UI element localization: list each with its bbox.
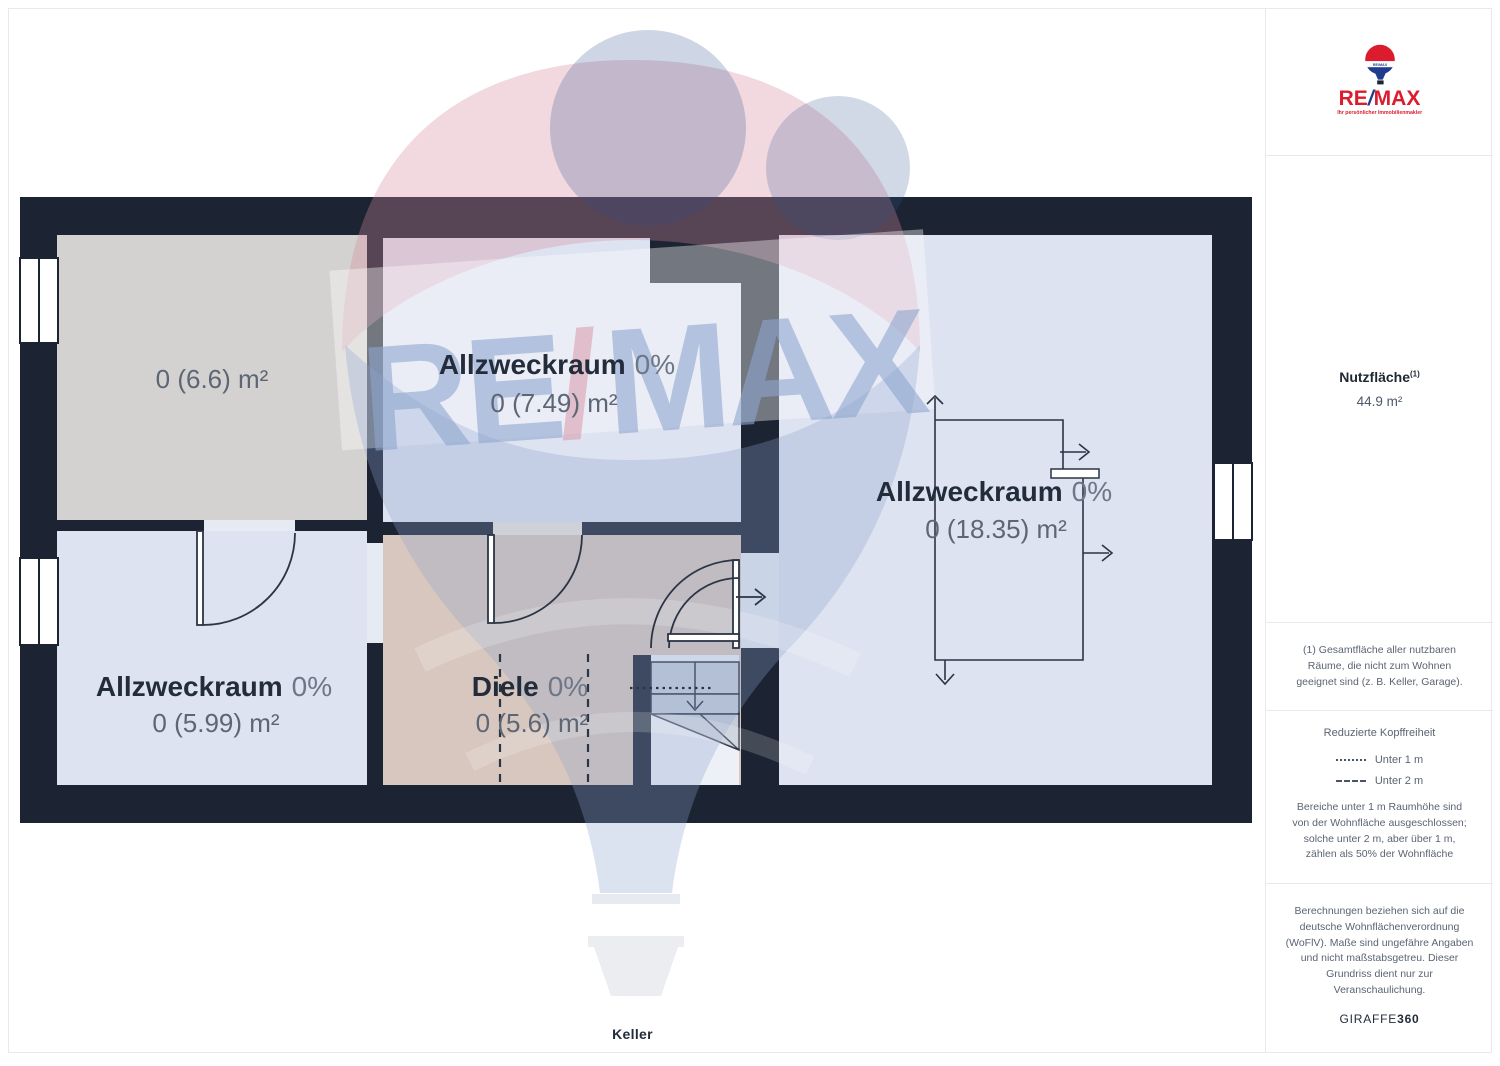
legend-item-label: Unter 2 m	[1375, 775, 1423, 787]
dotted-line-swatch	[1336, 759, 1366, 761]
area-summary-footnote-ref: (1)	[1410, 369, 1420, 378]
room-utility-right-area: 0 (18.35) m²	[925, 514, 1067, 544]
legend-item-under-2m: Unter 2 m	[1336, 775, 1423, 787]
area-summary-title-text: Nutzfläche	[1339, 369, 1410, 385]
floor-plan: RE / MAX	[0, 0, 1265, 1061]
passage-opening-left	[367, 543, 383, 643]
room-utility-top-area: 0 (7.49) m²	[490, 388, 617, 418]
watermark-gore-2	[766, 96, 910, 240]
remax-wordmark: RE/MAX	[1339, 88, 1421, 109]
room-utility-right-label: Allzweckraum0%	[876, 476, 1112, 507]
dashed-line-swatch	[1336, 780, 1366, 782]
legend-item-under-1m: Unter 1 m	[1336, 754, 1423, 766]
watermark-gore-1	[550, 30, 746, 226]
room-utility-bottom-left-area: 0 (5.99) m²	[152, 708, 279, 738]
remax-logo: RE/MAX RE/MAX Ihr persönlicher Immobilie…	[1266, 8, 1493, 155]
giraffe360-normal: GIRAFFE	[1339, 1012, 1397, 1026]
disclaimer-section: Berechnungen beziehen sich auf die deuts…	[1266, 883, 1493, 1053]
door-leaf-storage	[197, 531, 203, 625]
room-storage-area: 0 (6.6) m²	[156, 364, 269, 394]
giraffe360-brand: GIRAFFE360	[1339, 1012, 1419, 1026]
area-summary-title: Nutzfläche(1)	[1339, 369, 1420, 385]
legend-title: Reduzierte Kopffreiheit	[1324, 727, 1436, 739]
brand-max: MAX	[1374, 87, 1421, 110]
legend-item-label: Unter 1 m	[1375, 754, 1423, 766]
floor-plan-svg: RE / MAX	[0, 0, 1265, 1061]
watermark-basket	[588, 894, 684, 996]
remax-balloon-icon: RE/MAX	[1364, 43, 1396, 85]
remax-watermark: RE / MAX	[329, 30, 935, 996]
info-sidebar: RE/MAX RE/MAX Ihr persönlicher Immobilie…	[1265, 8, 1493, 1053]
giraffe360-bold: 360	[1397, 1012, 1419, 1026]
disclaimer-text: Berechnungen beziehen sich auf die deuts…	[1286, 904, 1474, 999]
brand-re: RE	[1339, 87, 1368, 110]
remax-tagline: Ihr persönlicher Immobilienmakler	[1337, 110, 1422, 116]
room-utility-bottom-left-floor	[57, 531, 367, 785]
room-hallway-label: Diele0%	[472, 671, 588, 702]
room-hallway-area: 0 (5.6) m²	[476, 708, 589, 738]
headroom-legend: Reduzierte Kopffreiheit Unter 1 m Unter …	[1266, 710, 1493, 883]
room-utility-top-label: Allzweckraum0%	[439, 349, 675, 380]
balloon-band-text: RE/MAX	[1372, 63, 1387, 67]
floor-name-label: Keller	[0, 1026, 1265, 1042]
stair-threshold	[668, 634, 739, 641]
room-utility-bottom-left-label: Allzweckraum0%	[96, 671, 332, 702]
footnote-text: (1) Gesamtfläche aller nutzbaren Räume, …	[1296, 642, 1462, 691]
balloon-basket	[1377, 80, 1383, 84]
legend-description: Bereiche unter 1 m Raumhöhe sind von der…	[1292, 800, 1466, 863]
footnote-section: (1) Gesamtfläche aller nutzbaren Räume, …	[1266, 622, 1493, 710]
area-summary: Nutzfläche(1) 44.9 m²	[1266, 155, 1493, 622]
door-leaf-hallway-top	[488, 535, 494, 623]
area-summary-value: 44.9 m²	[1357, 394, 1403, 409]
door-opening-storage	[204, 520, 295, 531]
